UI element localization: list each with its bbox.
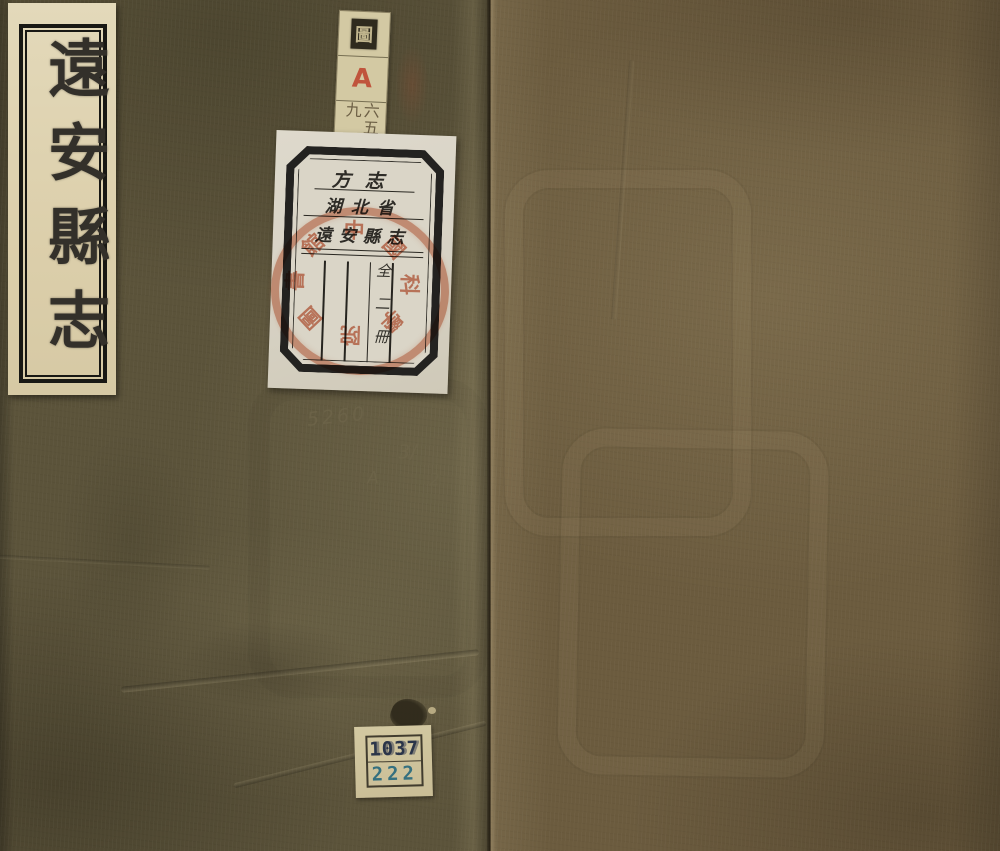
book-cover-photo: 遠安縣志 圖 A 六五九 方志 湖北省 遠安縣志: [0, 0, 1000, 851]
paper-speck: [428, 707, 436, 714]
book-title-calligraphy: 遠安縣志: [8, 13, 116, 395]
title-slip: 遠安縣志: [8, 3, 116, 395]
fold-highlight: [491, 0, 497, 851]
pencil-mark: 3/: [398, 441, 417, 464]
library-stamp-icon: 圖: [350, 18, 377, 49]
red-smear: [395, 45, 429, 125]
library-seal-ring-text: 中國科學院圖書館: [269, 204, 436, 362]
catalog-label: 方志 湖北省 遠安縣志 全二冊 中國科學: [268, 130, 457, 394]
pencil-letter: A: [367, 468, 379, 488]
pencil-number: 5260: [306, 403, 368, 431]
pencil-digit: 2: [429, 470, 441, 490]
stain: [60, 430, 200, 650]
call-number-strip: 圖 A 六五九: [333, 10, 391, 152]
category-line: 方志: [302, 164, 429, 192]
strip-stamp-section: 圖: [338, 11, 390, 58]
shelf-number-bottom: 222: [368, 761, 422, 786]
series-letter: A: [336, 56, 388, 103]
shelf-number-label: 1037 222: [354, 725, 433, 798]
shelf-number-top: 1037: [367, 736, 421, 762]
pencil-inscription: 5260 3/ A 2: [298, 395, 476, 503]
cloth-grain-texture: [0, 0, 1000, 851]
shelf-number-box: 1037 222: [365, 734, 423, 787]
stain: [180, 620, 360, 710]
watermark-shape: [557, 428, 829, 779]
